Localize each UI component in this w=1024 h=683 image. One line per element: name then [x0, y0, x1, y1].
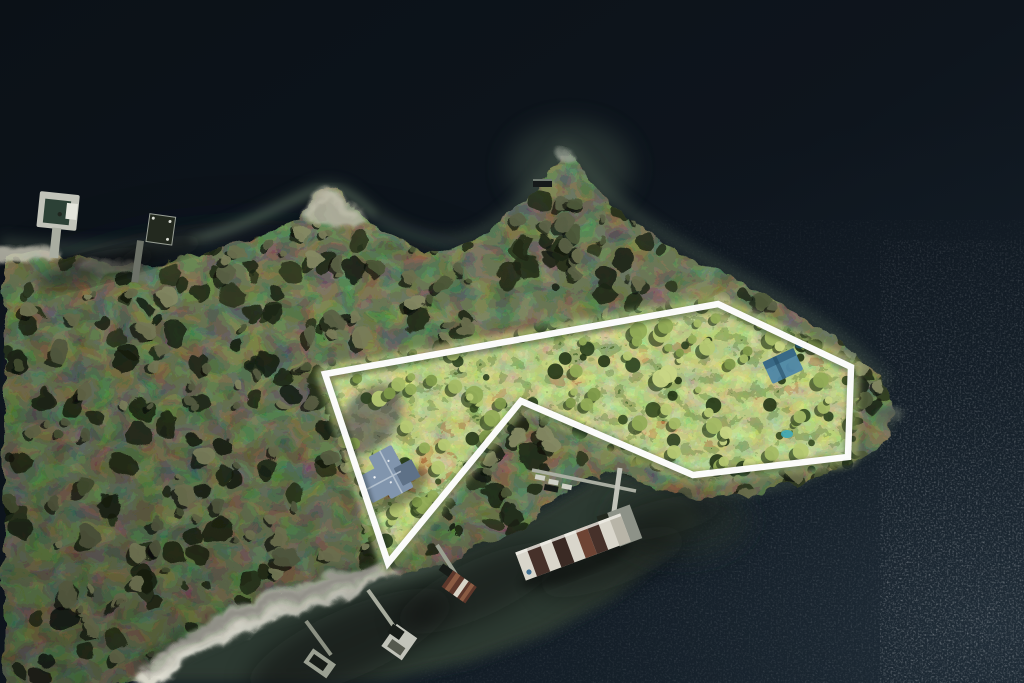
aerial-photo	[0, 0, 1024, 683]
teal-item	[781, 430, 793, 438]
point-dock	[533, 179, 552, 187]
